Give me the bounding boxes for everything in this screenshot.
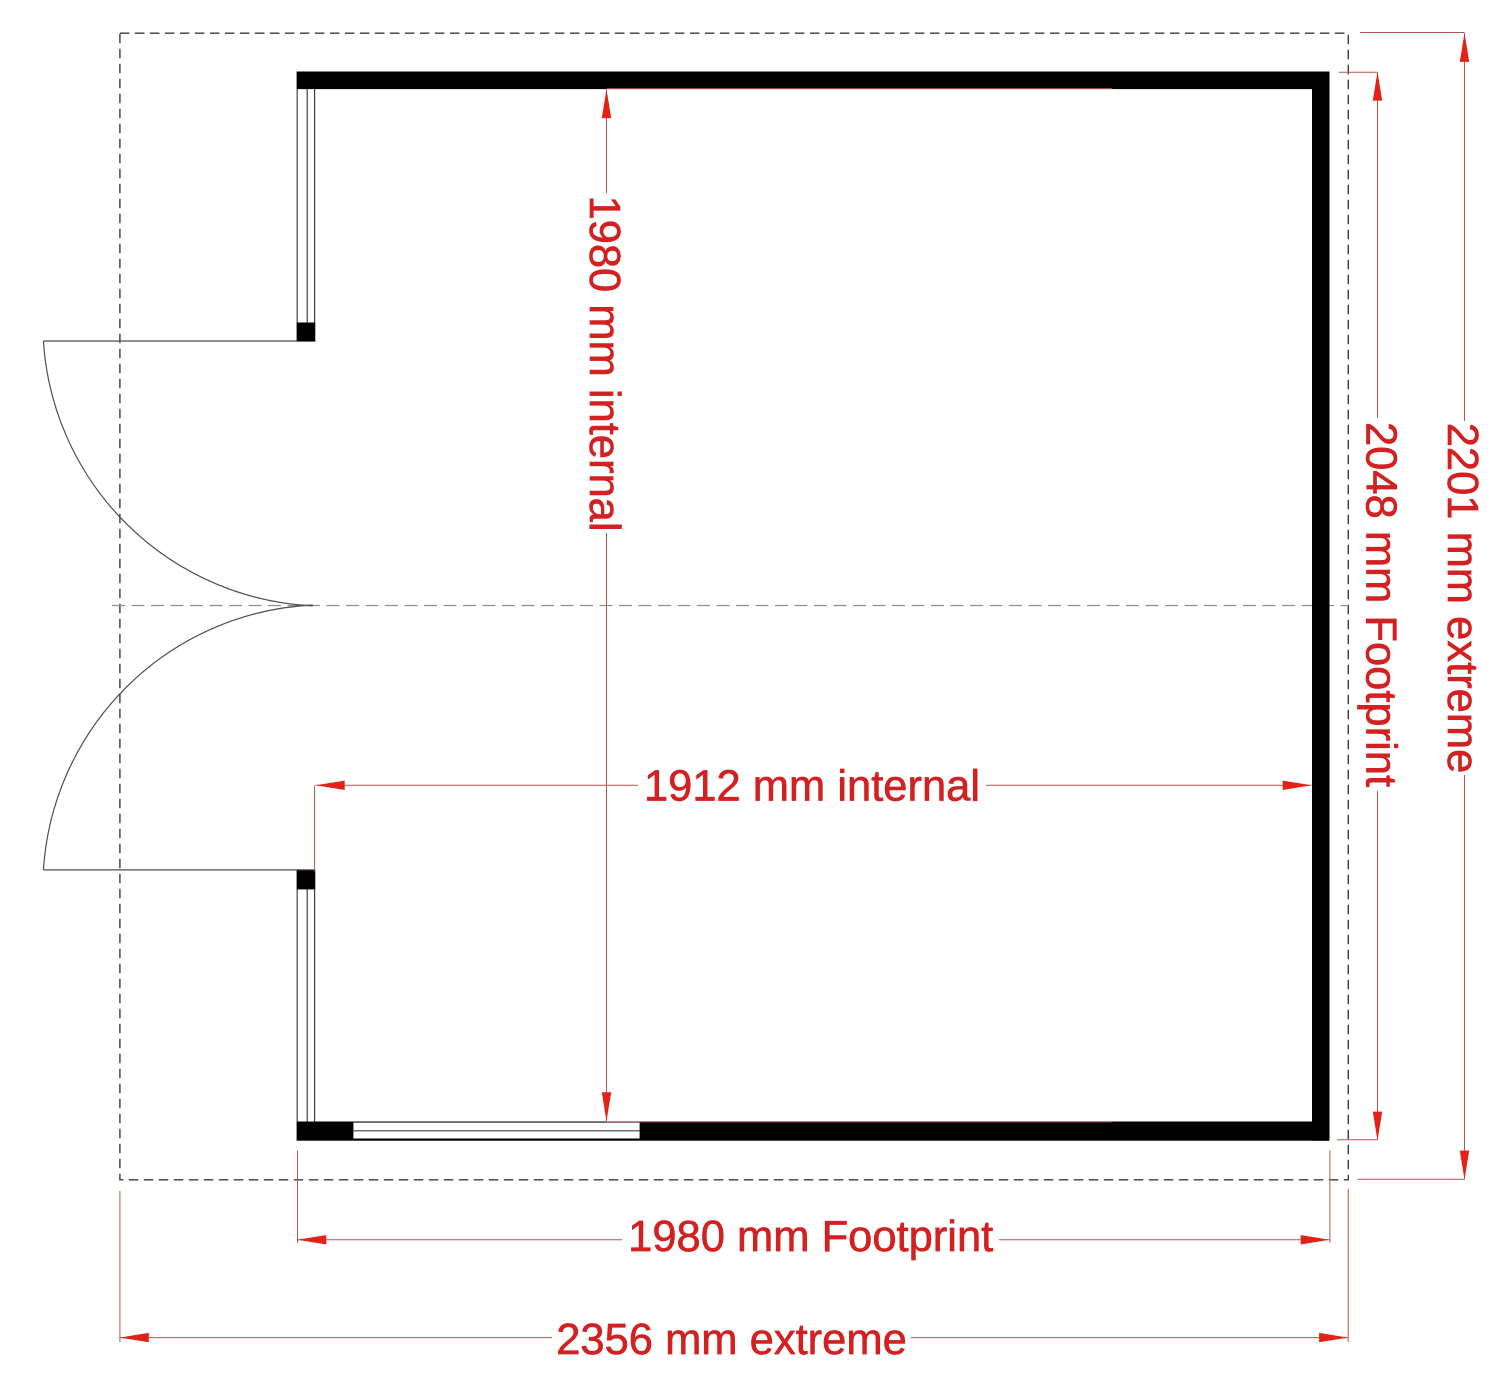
svg-text:2048 mm Footprint: 2048 mm Footprint	[1356, 422, 1404, 787]
svg-text:1912 mm internal: 1912 mm internal	[644, 763, 980, 811]
svg-text:1980 mm Footprint: 1980 mm Footprint	[628, 1213, 993, 1261]
svg-text:2201 mm extreme: 2201 mm extreme	[1438, 423, 1486, 774]
svg-text:2356 mm extreme: 2356 mm extreme	[556, 1316, 907, 1364]
svg-text:1980 mm internal: 1980 mm internal	[580, 195, 628, 531]
